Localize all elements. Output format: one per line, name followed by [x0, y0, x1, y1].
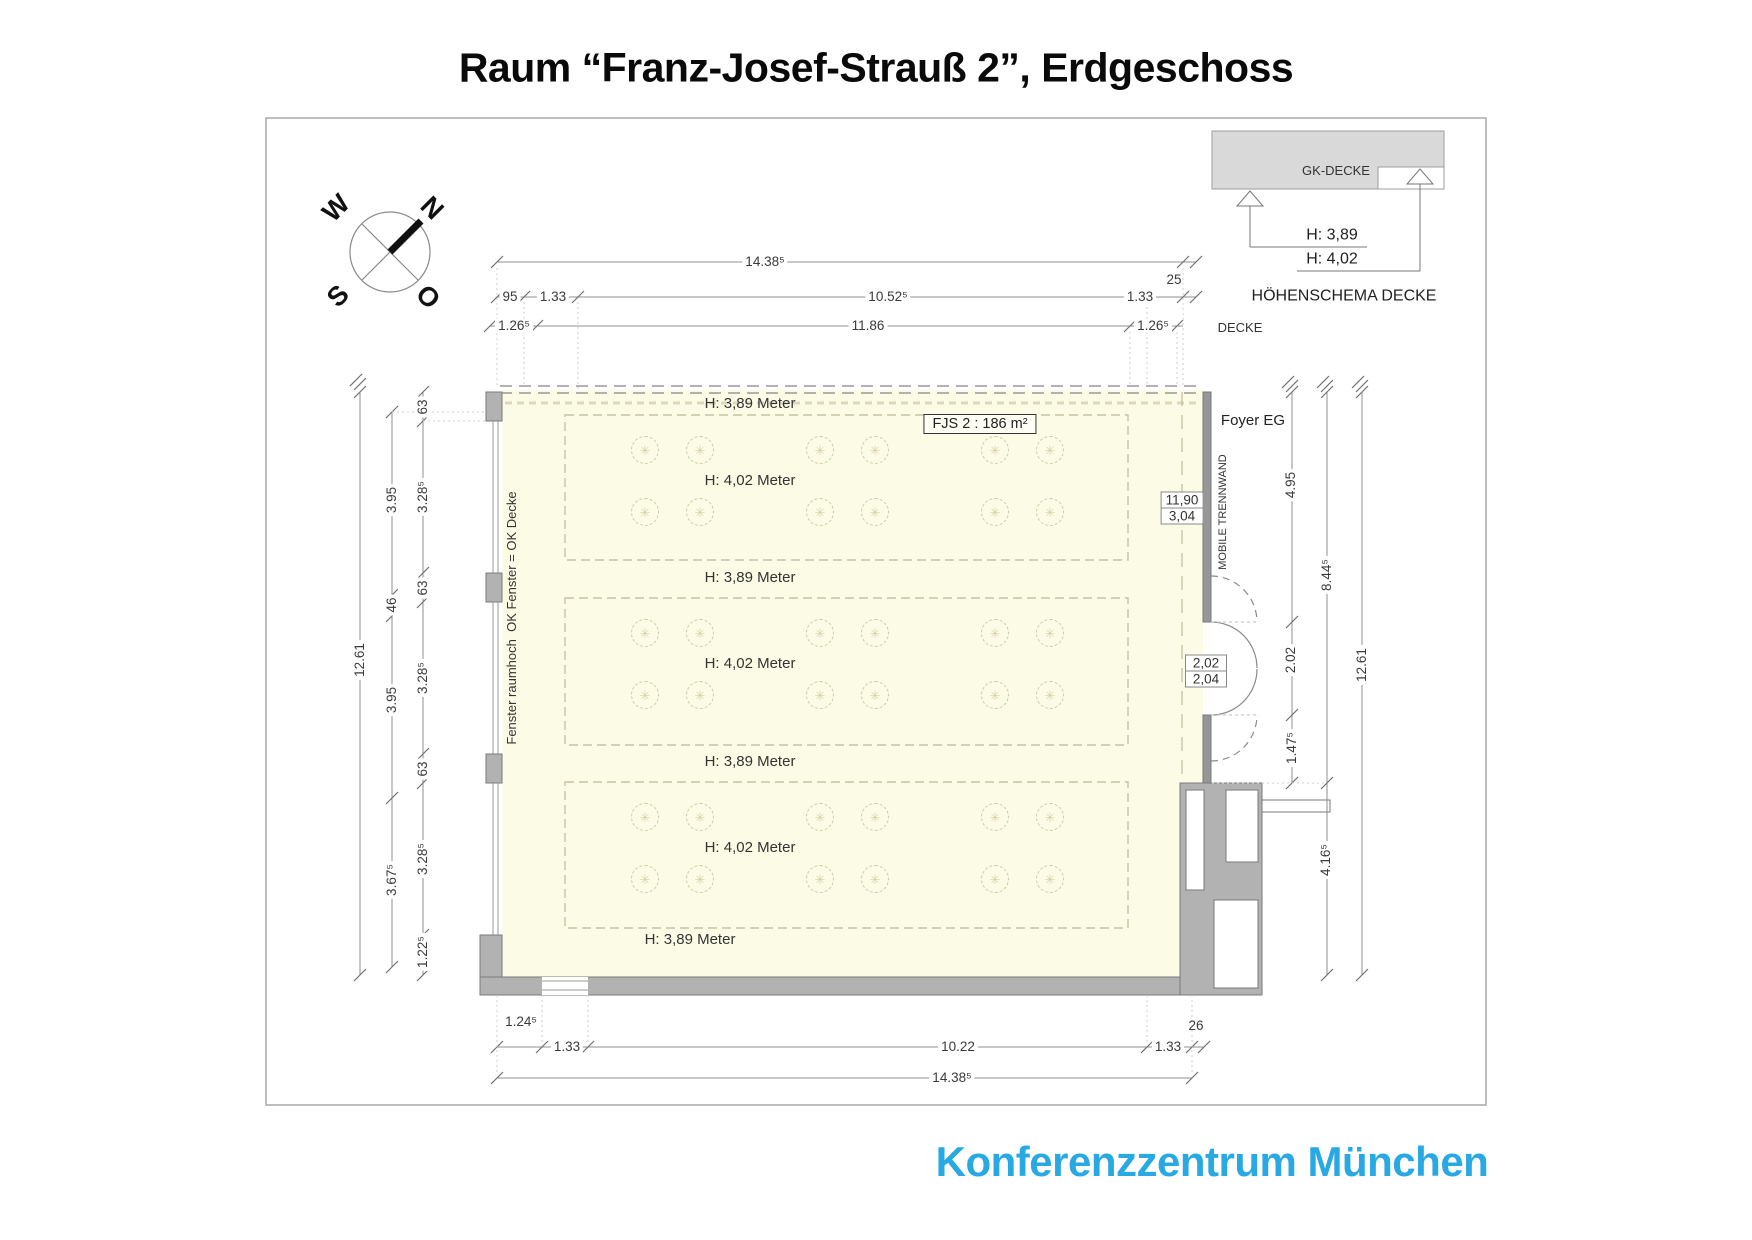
ceiling-light-icon: ✳ [981, 803, 1009, 831]
gk-decke-notch [1378, 167, 1444, 189]
dim-height-389: H: 3,89 [1306, 228, 1358, 245]
door-dim-bottom: 2,04 [1186, 672, 1226, 687]
label-h402-2: H: 4,02 Meter [705, 656, 796, 672]
dim-right-1261: 12.61 [1355, 645, 1369, 685]
ceiling-light-icon: ✳ [806, 865, 834, 893]
dim-bottom-133-right: 1.33 [1152, 1040, 1184, 1054]
dim-right-844: 8.44⁵ [1320, 556, 1334, 594]
ceiling-light-icon: ✳ [861, 865, 889, 893]
ceiling-light-icon: ✳ [631, 436, 659, 464]
label-fenster-raumhoch: Fenster raumhoch OK Fenster = OK Decke [505, 491, 519, 744]
label-h402-1: H: 4,02 Meter [705, 473, 796, 489]
ceiling-light-icon: ✳ [981, 498, 1009, 526]
ceiling-light-icon: ✳ [806, 436, 834, 464]
door-dim-top: 2,02 [1186, 656, 1226, 672]
dim-top-1052: 10.52⁵ [865, 290, 910, 304]
label-h389-4: H: 3,89 Meter [645, 932, 736, 948]
ceiling-light-icon: ✳ [981, 681, 1009, 709]
dim-bottom-total: 14.38⁵ [929, 1071, 974, 1085]
ceiling-light-icon: ✳ [806, 498, 834, 526]
ceiling-light-icon: ✳ [631, 803, 659, 831]
ceiling-light-icon: ✳ [1036, 681, 1064, 709]
dim-left-395-lower: 3.95 [385, 684, 399, 716]
ceiling-light-icon: ✳ [631, 681, 659, 709]
dim-right-147: 1.47⁵ [1285, 729, 1299, 767]
label-h389-1: H: 3,89 Meter [705, 396, 796, 412]
label-gk-decke: GK-DECKE [1302, 164, 1370, 178]
dim-left-328-b: 3.28⁵ [416, 659, 430, 697]
logo-konferenzzentrum-muenchen: Konferenzzentrum München [936, 1138, 1489, 1186]
ceiling-light-icon: ✳ [1036, 865, 1064, 893]
ceiling-light-icon: ✳ [686, 619, 714, 647]
dim-left-328-c: 3.28⁵ [416, 840, 430, 878]
dim-left-46: 46 [385, 594, 399, 615]
label-decke: DECKE [1218, 321, 1263, 335]
dimension-break-marks [350, 374, 1368, 392]
dim-left-367: 3.67⁵ [385, 861, 399, 899]
ceiling-light-icon: ✳ [1036, 803, 1064, 831]
dim-top-total: 14.38⁵ [742, 255, 787, 269]
dim-left-328-a: 3.28⁵ [416, 478, 430, 516]
dim-height-402: H: 4,02 [1306, 252, 1358, 269]
room-area-label: FJS 2 : 186 m² [923, 414, 1036, 434]
dim-bottom-26: 26 [1188, 1019, 1203, 1033]
dim-right-416: 4.16⁵ [1319, 841, 1333, 879]
ceiling-light-icon: ✳ [686, 803, 714, 831]
ceiling-light-icon: ✳ [981, 619, 1009, 647]
dim-bottom-133-left: 1.33 [551, 1040, 583, 1054]
dim-left-395-upper: 3.95 [385, 484, 399, 516]
ceiling-light-icon: ✳ [1036, 619, 1064, 647]
ceiling-light-icon: ✳ [1036, 436, 1064, 464]
ceiling-light-icon: ✳ [806, 619, 834, 647]
partition-dim-top: 11,90 [1162, 493, 1203, 509]
label-foyer-eg: Foyer EG [1221, 413, 1285, 429]
dim-left-122: 1.22⁵ [416, 933, 430, 971]
ceiling-light-icon: ✳ [806, 803, 834, 831]
dim-bottom-1022: 10.22 [938, 1040, 978, 1054]
dim-right-202: 2.02 [1284, 644, 1298, 676]
dim-right-495: 4.95 [1284, 469, 1298, 501]
label-h389-2: H: 3,89 Meter [705, 570, 796, 586]
dim-top-25: 25 [1166, 273, 1181, 287]
ceiling-light-icon: ✳ [861, 619, 889, 647]
label-mobile-trennwand: MOBILE TRENNWAND [1218, 454, 1230, 570]
dim-top-126-left: 1.26⁵ [495, 319, 533, 333]
label-h402-3: H: 4,02 Meter [705, 840, 796, 856]
dim-top-1186: 11.86 [849, 319, 888, 333]
ceiling-light-icon: ✳ [686, 681, 714, 709]
label-hoehenschema-decke: HÖHENSCHEMA DECKE [1252, 289, 1437, 306]
ceiling-light-icon: ✳ [861, 681, 889, 709]
level-marker-icon [1237, 191, 1263, 206]
room-floor-area [502, 390, 1203, 977]
ceiling-light-icon: ✳ [631, 619, 659, 647]
dim-left-1261: 12.61 [353, 640, 367, 680]
dim-top-95: 95 [499, 290, 520, 304]
dim-left-63-b: 63 [416, 577, 430, 598]
ceiling-light-icon: ✳ [981, 436, 1009, 464]
ceiling-light-icon: ✳ [686, 865, 714, 893]
ceiling-light-icon: ✳ [861, 498, 889, 526]
ceiling-light-icon: ✳ [686, 436, 714, 464]
dim-top-126-right: 1.26⁵ [1134, 319, 1172, 333]
door-dimension-box: 2,02 2,04 [1185, 655, 1227, 688]
ceiling-light-icon: ✳ [631, 865, 659, 893]
dim-top-133-right: 1.33 [1124, 290, 1156, 304]
ceiling-light-icon: ✳ [1036, 498, 1064, 526]
mobile-partition-wall [1203, 392, 1211, 622]
dim-left-63-c: 63 [416, 758, 430, 779]
partition-dimension-box: 11,90 3,04 [1161, 492, 1204, 525]
ceiling-light-icon: ✳ [861, 803, 889, 831]
partition-dim-bottom: 3,04 [1162, 509, 1203, 524]
ceiling-light-icon: ✳ [981, 865, 1009, 893]
dim-bottom-124: 1.24⁵ [505, 1015, 537, 1029]
ceiling-light-icon: ✳ [806, 681, 834, 709]
dim-top-133-left: 1.33 [537, 290, 569, 304]
floor-plan-page: Raum “Franz-Josef-Strauß 2”, Erdgeschoss [0, 0, 1752, 1240]
ceiling-light-icon: ✳ [861, 436, 889, 464]
ceiling-light-icon: ✳ [686, 498, 714, 526]
label-h389-3: H: 3,89 Meter [705, 754, 796, 770]
dim-left-63-a: 63 [416, 396, 430, 417]
ceiling-light-icon: ✳ [631, 498, 659, 526]
compass-rose-icon [350, 212, 430, 292]
